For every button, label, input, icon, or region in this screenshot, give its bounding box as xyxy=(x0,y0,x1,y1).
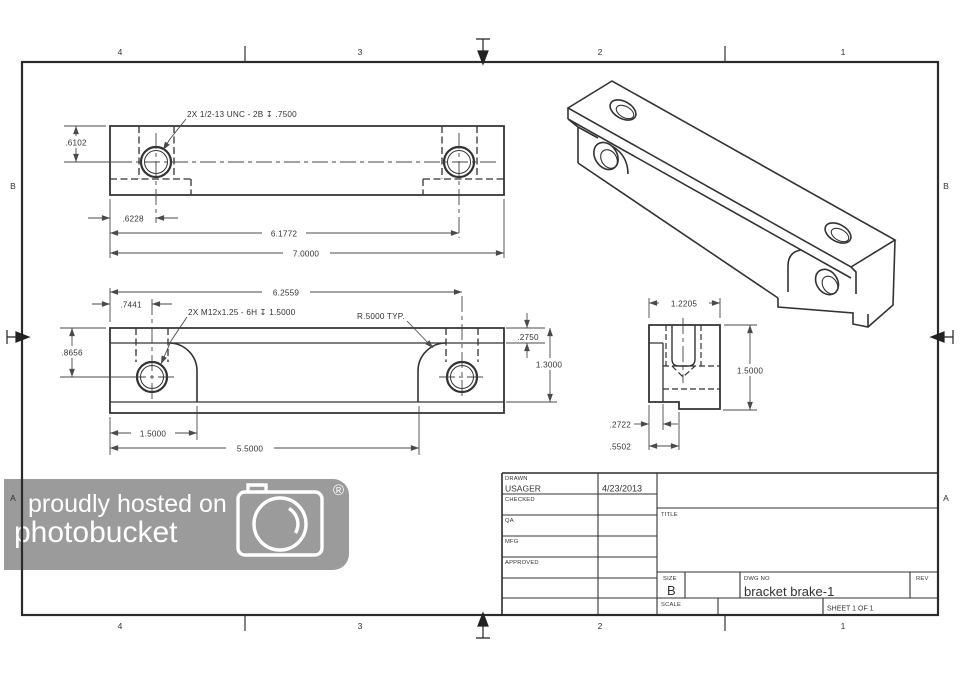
isometric-view xyxy=(568,81,895,327)
dim-top-strip: .2750 xyxy=(517,333,539,342)
dim-hole-from-left: .6228 xyxy=(122,215,144,224)
drawing-sheet: proudly hosted on photobucket ® xyxy=(0,0,960,677)
front-view: 6.2559 .7441 .8656 .2750 1.3000 1.5000 5… xyxy=(54,288,567,455)
dim-hole-from-top: .8656 xyxy=(61,349,83,358)
iso-top-face xyxy=(568,81,895,267)
sheet-border: 4 3 2 1 4 3 2 1 B A B A xyxy=(7,39,953,638)
tb-sheet-note: SHEET 1 OF 1 xyxy=(827,606,874,613)
iso-right-boss-fillet xyxy=(788,250,801,292)
tb-scale-label: SCALE xyxy=(661,602,681,608)
dim-step: .5502 xyxy=(610,443,632,452)
hidden-lines xyxy=(136,328,478,362)
zone-top-2: 2 xyxy=(598,47,603,57)
zone-right-A: A xyxy=(943,493,949,503)
zone-center-arrows xyxy=(7,39,953,638)
top-view: .6102 .6228 6.1772 7.0000 2X 1/2-13 UNC … xyxy=(58,110,504,259)
fillet-arcs xyxy=(169,343,446,402)
tb-label-qa: QA xyxy=(505,518,514,524)
zone-left-A: A xyxy=(10,493,16,503)
tb-dwg-value: bracket brake-1 xyxy=(744,584,834,599)
tapped-hole xyxy=(137,362,477,392)
thread-callout-top: 2X 1/2-13 UNC - 2B ↧ .7500 xyxy=(187,110,297,119)
side-view: 1.2205 1.5000 .2722 .5502 xyxy=(610,298,771,452)
zone-top-3: 3 xyxy=(358,47,363,57)
iso-top-holes xyxy=(607,96,855,247)
zone-top-4: 4 xyxy=(118,47,123,57)
tb-size-value: B xyxy=(667,583,676,598)
dim-height: 1.5000 xyxy=(737,367,763,376)
zone-bottom-4: 4 xyxy=(118,621,123,631)
dim-boss-width: 1.5000 xyxy=(140,430,166,439)
zone-right-B: B xyxy=(943,181,949,191)
tb-rev-label: REV xyxy=(916,576,929,582)
dim-hole-span: 6.1772 xyxy=(271,230,297,239)
dim-height: 1.3000 xyxy=(536,361,562,370)
dim-width: 1.2205 xyxy=(671,300,697,309)
engineering-drawing: 4 3 2 1 4 3 2 1 B A B A xyxy=(0,0,960,677)
tb-drawn-date: 4/23/2013 xyxy=(602,484,642,494)
zone-bottom-2: 2 xyxy=(598,621,603,631)
dim-overall: 7.0000 xyxy=(293,250,319,259)
dim-hole-from-top: .6102 xyxy=(65,139,87,148)
dim-boss-span: 5.5000 xyxy=(237,445,263,454)
thread-callout-front: 2X M12x1.25 - 6H ↧ 1.5000 xyxy=(188,308,296,317)
zone-top-1: 1 xyxy=(841,47,846,57)
title-block: DRAWN USAGER 4/23/2013 CHECKED QA MFG AP… xyxy=(502,473,938,615)
tb-label-drawn: DRAWN xyxy=(505,476,528,482)
dim-span-to-hole: 6.2559 xyxy=(273,289,299,298)
tb-label-checked: CHECKED xyxy=(505,497,535,503)
side-view-outline xyxy=(649,325,720,409)
tb-label-mfg: MFG xyxy=(505,539,519,545)
zone-left-B: B xyxy=(10,181,16,191)
zone-bottom-3: 3 xyxy=(358,621,363,631)
dim-hole-from-left: .7441 xyxy=(120,301,142,310)
counterbore xyxy=(672,325,695,366)
front-view-outline xyxy=(110,328,504,413)
centerlines xyxy=(116,133,498,238)
iso-side-holes xyxy=(589,138,843,299)
tb-dwg-label: DWG NO xyxy=(744,576,770,582)
iso-bottom-edge xyxy=(578,163,778,298)
dim-web: .2722 xyxy=(610,421,632,430)
tb-label-approved: APPROVED xyxy=(505,560,539,566)
tb-title-label: TITLE xyxy=(661,512,678,518)
tb-size-label: SIZE xyxy=(663,576,677,582)
tb-drawn-name: USAGER xyxy=(505,484,541,494)
zone-bottom-1: 1 xyxy=(841,621,846,631)
radius-note: R.5000 TYP. xyxy=(357,312,405,321)
